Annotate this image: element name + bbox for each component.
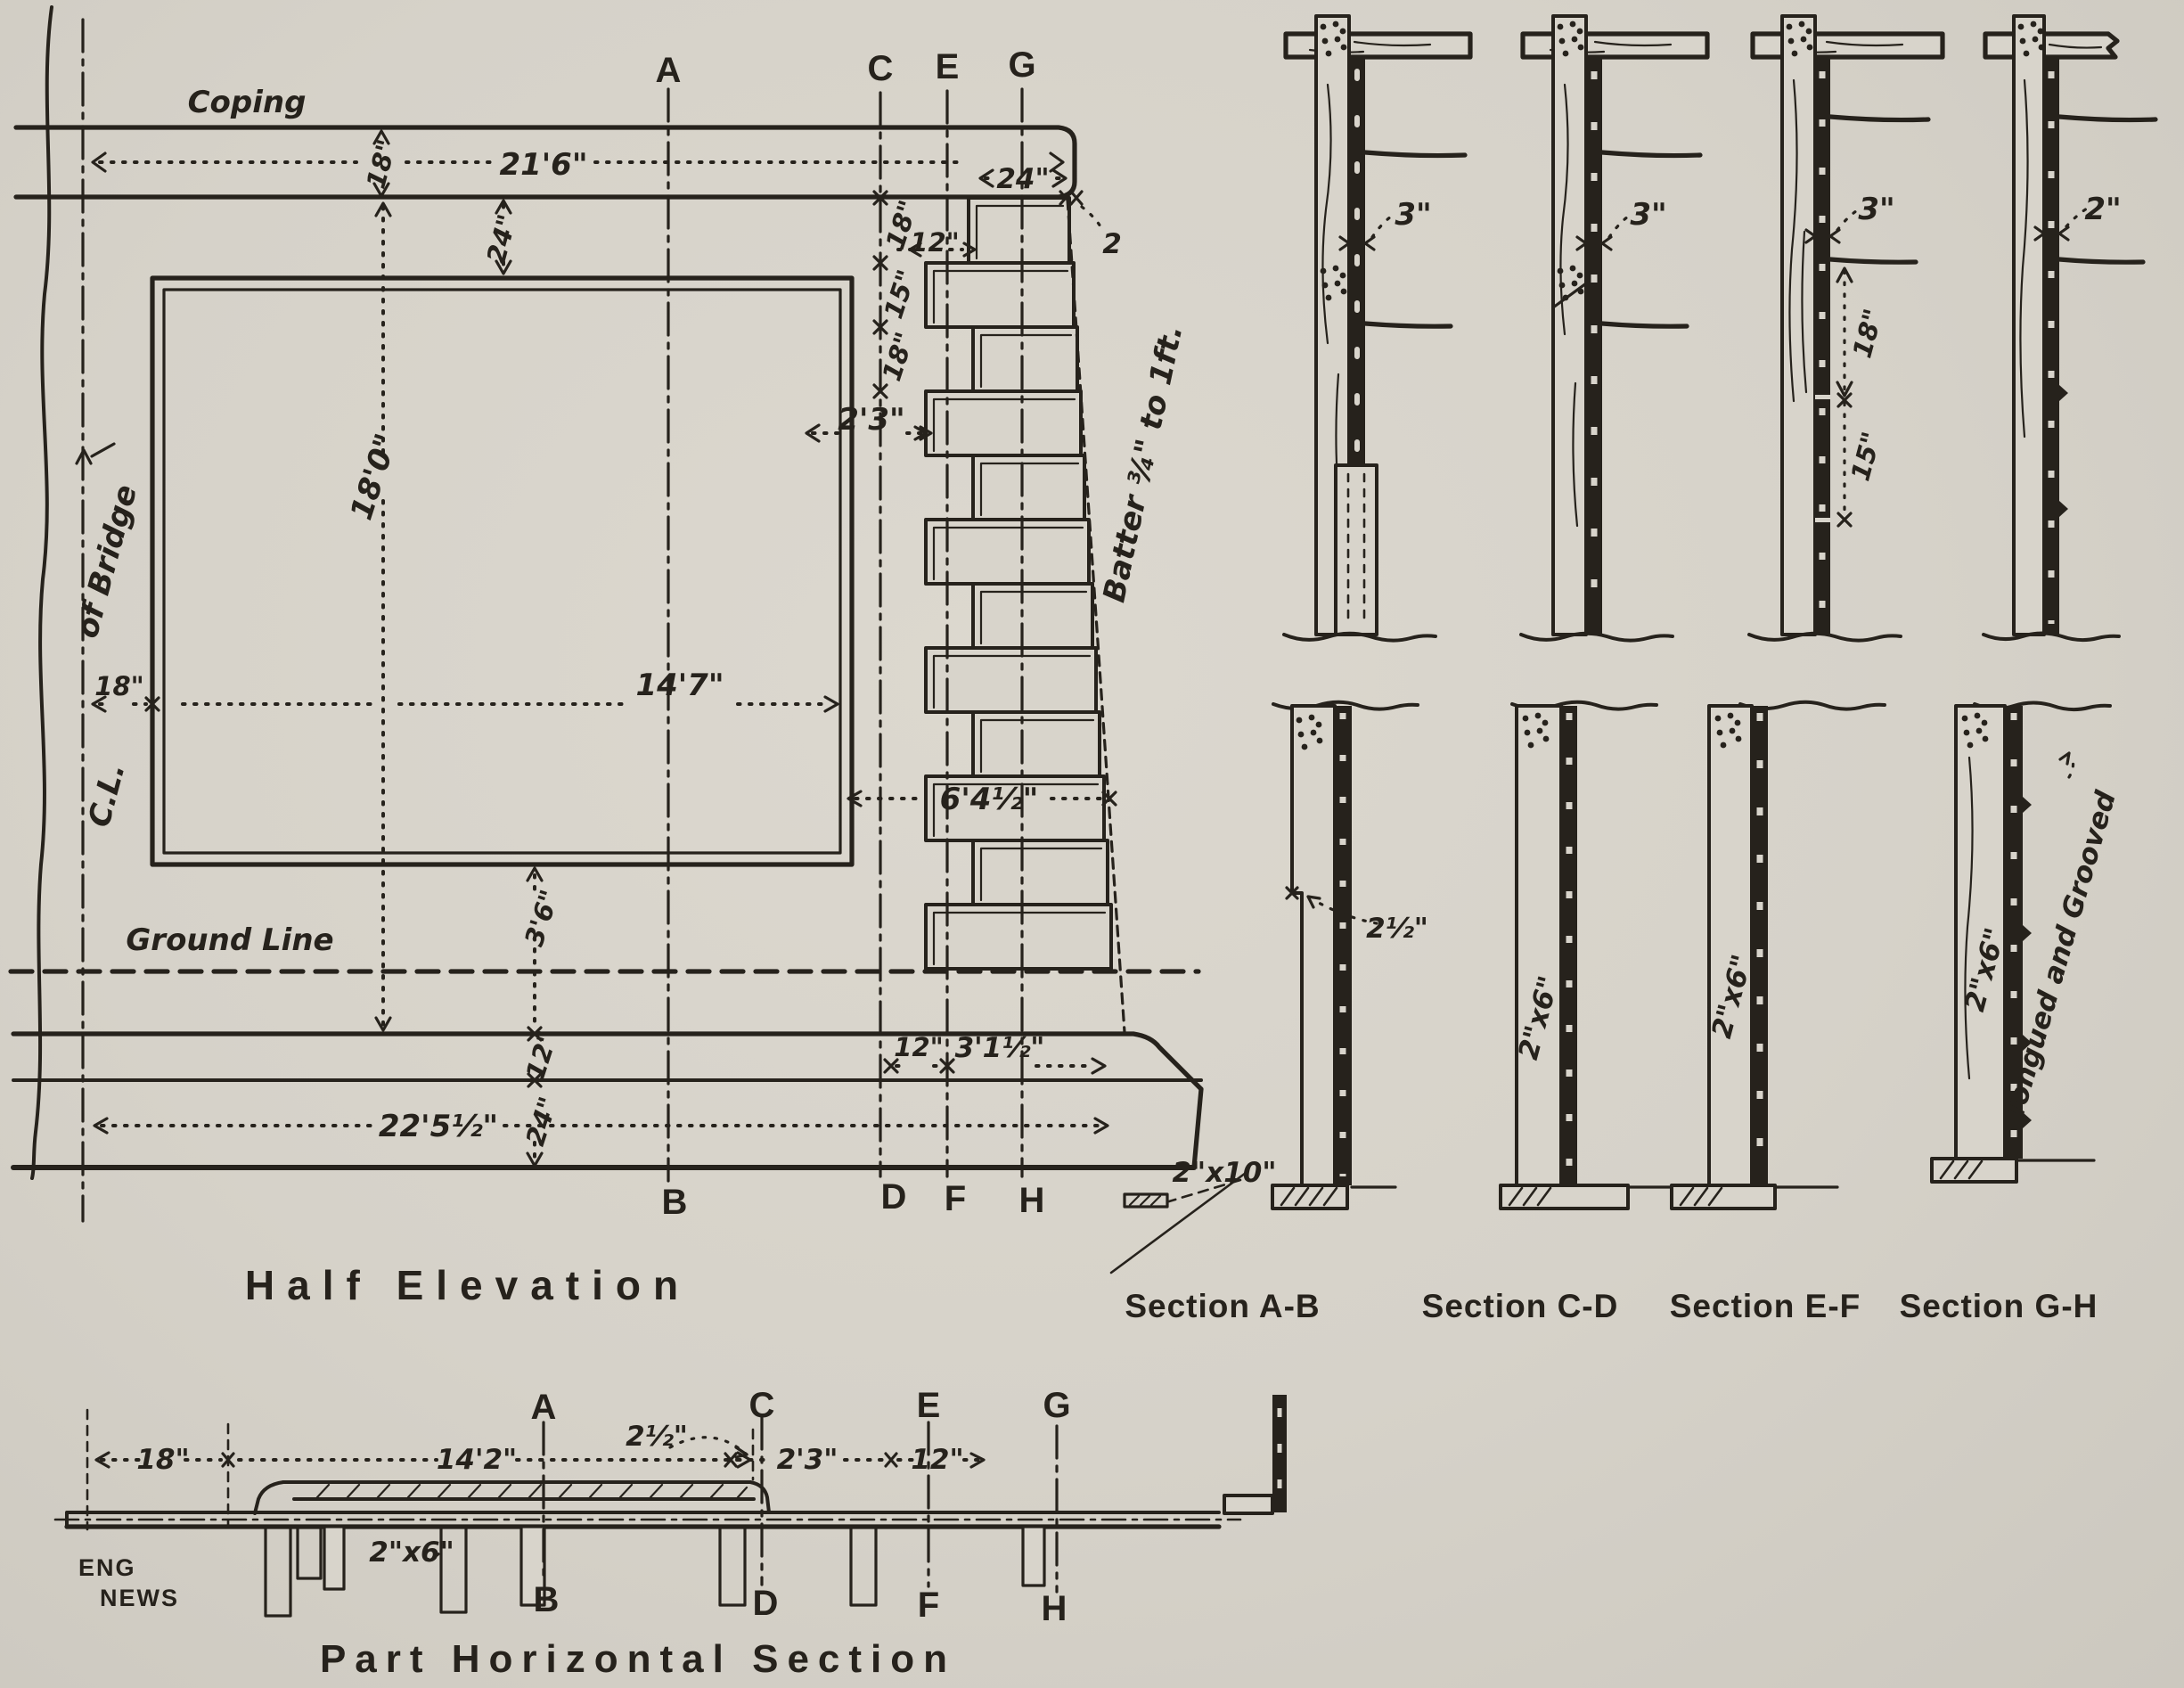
section-ab-dim-2-5: 2½" bbox=[1366, 913, 1428, 945]
dim-14-7: 14'7" bbox=[635, 668, 724, 703]
plan-letter-c: C bbox=[749, 1386, 775, 1425]
dim-15-board: 15" bbox=[878, 266, 921, 322]
section-cd-dim-3: 3" bbox=[1630, 197, 1666, 233]
plan-dim-18: 18" bbox=[136, 1444, 189, 1476]
section-cd-drawing: 3" 2"x6" Section C-D bbox=[1422, 16, 1707, 1324]
dim-24-foot: 24" bbox=[519, 1093, 563, 1149]
plan-letter-e: E bbox=[917, 1386, 941, 1425]
section-cd-title: Section C-D bbox=[1422, 1288, 1619, 1324]
cl-label: C.L. bbox=[81, 759, 132, 831]
section-ab-dim-3: 3" bbox=[1395, 197, 1431, 233]
section-ef-drawing: 3" 18" 15" 2"x6" Section E-F bbox=[1670, 16, 1943, 1324]
dim-21-6: 21'6" bbox=[499, 147, 587, 183]
plan-dim-12: 12" bbox=[911, 1444, 963, 1476]
dim-12-base: 12" bbox=[894, 1032, 943, 1062]
section-ef-dim-15: 15" bbox=[1845, 429, 1886, 484]
plan-letter-a: A bbox=[531, 1388, 557, 1427]
credit-news: NEWS bbox=[100, 1585, 179, 1611]
dim-22-5-5: 22'5½" bbox=[379, 1109, 498, 1144]
half-elevation-title: Half Elevation bbox=[245, 1262, 691, 1308]
panel-inner bbox=[164, 290, 840, 853]
plan-dim-14-2: 14'2" bbox=[437, 1444, 517, 1476]
section-cd-foot bbox=[1501, 1185, 1670, 1209]
dim-3-1-5: 3'1½" bbox=[955, 1032, 1045, 1064]
cl-of-bridge-label: of Bridge bbox=[70, 481, 144, 642]
section-ab-drawing: 3" 2½" Section A-B bbox=[1125, 16, 1470, 1324]
coping-label: Coping bbox=[188, 85, 307, 120]
half-elevation-drawing: Coping 21'6" 18" 24" 24" 2 12" 18" 15" 1… bbox=[11, 7, 1277, 1308]
section-ef-title: Section E-F bbox=[1670, 1288, 1861, 1324]
plan-letter-h: H bbox=[1042, 1589, 1067, 1628]
letter-e-top: E bbox=[936, 47, 960, 86]
drawing-sheet: Coping 21'6" 18" 24" 24" 2 12" 18" 15" 1… bbox=[0, 0, 2184, 1688]
dim-12-offset: 12" bbox=[910, 227, 959, 258]
dim-24-coping-end: 24" bbox=[996, 163, 1049, 195]
letter-d-bottom: D bbox=[881, 1177, 907, 1217]
sheathing-planks bbox=[926, 198, 1111, 969]
dim-18-coping: 18" bbox=[360, 136, 402, 192]
dim-3-6: 3'6" bbox=[519, 886, 565, 950]
plan-stud-label: 2"x6" bbox=[369, 1536, 454, 1569]
section-ef-dim-3: 3" bbox=[1858, 192, 1894, 227]
plan-letter-g: G bbox=[1043, 1386, 1070, 1425]
credit-eng: ENG bbox=[78, 1554, 136, 1581]
plan-section-drawing: A C E G B D F H 18" 14'2" 2½" 2'3" 12" 2… bbox=[55, 1386, 1287, 1681]
letter-h-bottom: H bbox=[1019, 1181, 1045, 1220]
dim-2-3: 2'3" bbox=[838, 402, 904, 438]
letter-g-top: G bbox=[1008, 45, 1035, 85]
section-gh-title: Section G-H bbox=[1900, 1288, 2098, 1324]
dim-6-4-5: 6'4½" bbox=[940, 782, 1039, 817]
section-ab-foot bbox=[1272, 1185, 1395, 1209]
plan-letter-f: F bbox=[918, 1586, 939, 1625]
section-gh-dim-2: 2" bbox=[2084, 192, 2121, 227]
label-2x10: 2"x10" bbox=[1172, 1157, 1276, 1189]
plan-title: Part Horizontal Section bbox=[320, 1637, 956, 1681]
panel-outer bbox=[152, 278, 852, 864]
dim-18-0: 18'0" bbox=[344, 430, 405, 525]
plan-letter-b: B bbox=[534, 1580, 560, 1619]
plan-wale bbox=[255, 1482, 769, 1513]
batter-label: Batter ¾" to 1ft. bbox=[1096, 322, 1190, 605]
torn-edge bbox=[32, 7, 52, 1178]
plan-dim-2-5: 2½" bbox=[626, 1421, 688, 1453]
dim-18-cl: 18" bbox=[94, 671, 143, 701]
sill-plank bbox=[1125, 1194, 1167, 1207]
ground-line-label: Ground Line bbox=[126, 922, 333, 958]
plan-dim-2-3: 2'3" bbox=[777, 1444, 838, 1476]
section-ef-foot bbox=[1672, 1185, 1837, 1209]
section-gh-drawing: 2" 2"x6" Tongued and Grooved Section G-H bbox=[1900, 16, 2155, 1324]
dim-24-top: 24" bbox=[480, 211, 522, 266]
timber-form-drawing: Coping 21'6" 18" 24" 24" 2 12" 18" 15" 1… bbox=[0, 0, 2184, 1688]
dim-2-inset: 2 bbox=[1102, 228, 1122, 260]
plan-letter-d: D bbox=[753, 1584, 779, 1623]
section-ab-title: Section A-B bbox=[1125, 1288, 1320, 1324]
section-ef-dim-18: 18" bbox=[1846, 306, 1888, 361]
letter-c-top: C bbox=[868, 49, 894, 88]
letter-a-top: A bbox=[656, 51, 682, 90]
plan-corner-return bbox=[1224, 1395, 1287, 1513]
dim-18-board-b: 18" bbox=[876, 328, 920, 384]
letter-f-bottom: F bbox=[945, 1179, 966, 1218]
letter-b-bottom: B bbox=[662, 1183, 688, 1222]
section-gh-foot bbox=[1932, 1159, 2094, 1182]
